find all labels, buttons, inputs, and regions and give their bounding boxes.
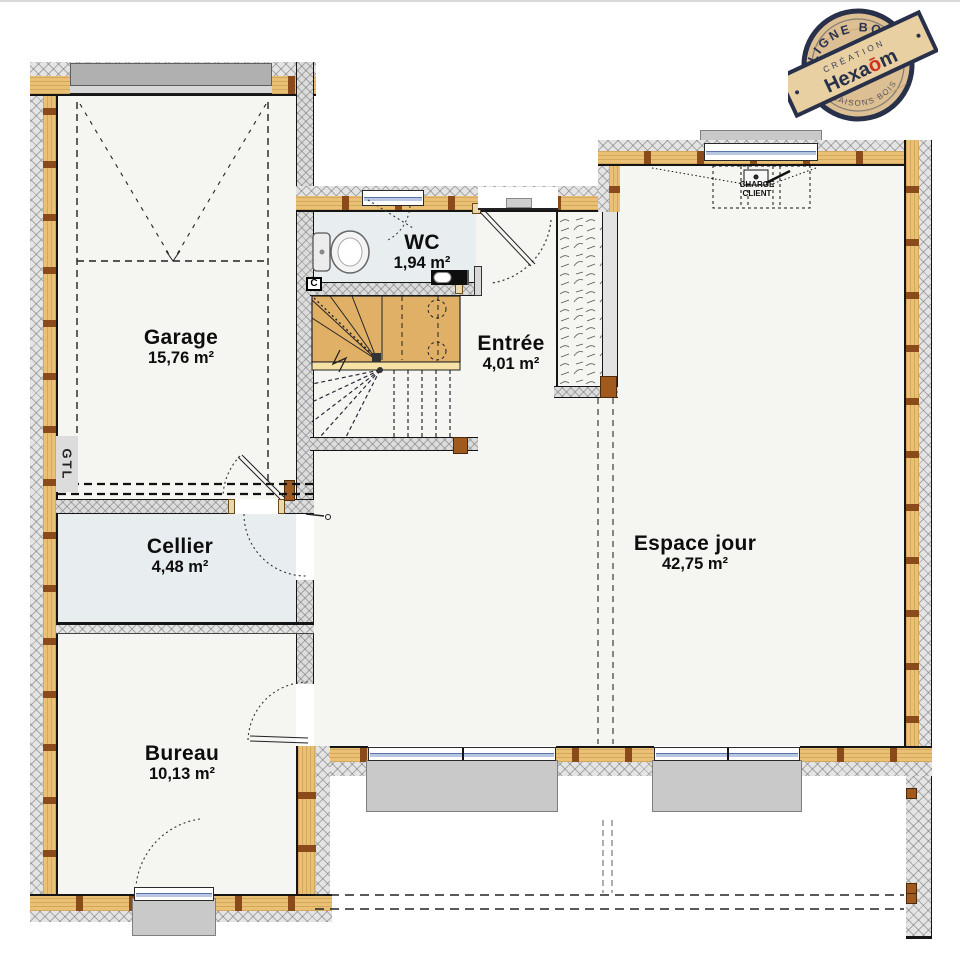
bureau-floor: [58, 634, 296, 894]
bay-window-2: [654, 747, 800, 761]
wood-post: [600, 376, 617, 398]
mullion: [727, 748, 729, 760]
stamp-top-text: LIGNE BOIS: [799, 11, 904, 68]
bureau-window-sill: [132, 898, 216, 936]
bay-window-1-sill: [366, 760, 558, 812]
wood-post: [453, 437, 468, 454]
terrace-outline: [315, 820, 904, 909]
stamp-band: CRÉATION Hexaōm: [788, 12, 936, 115]
svg-text:LIGNE BOIS: LIGNE BOIS: [799, 11, 904, 68]
door-jamb: [455, 283, 463, 294]
wc-window: [362, 190, 424, 206]
wall-garage-cellier-b: [285, 499, 314, 514]
wall-east-inner-line: [904, 140, 906, 756]
wall-strip-east: [602, 212, 618, 386]
wall-north-entrance: [296, 186, 618, 212]
espace-jour-north-window: [704, 143, 818, 161]
gtl-duct-label: GTL: [56, 436, 78, 492]
wall-east: [906, 140, 932, 940]
floor-plan: GTL C CHARGE CLIENT Garage 15,76 m² WC 1…: [0, 0, 960, 958]
espace-jour-floor: [618, 166, 906, 746]
stamp-brand: Hexaōm: [821, 45, 901, 98]
stamp-bottom-text: MAISONS BOIS: [828, 77, 902, 115]
cellier-floor: [58, 514, 296, 622]
charge-client-note: CHARGE CLIENT: [722, 180, 792, 198]
wall-wc-stairs: [310, 282, 478, 296]
wood-grain: [806, 20, 910, 110]
wall-west: [30, 62, 58, 922]
stamp-creation: CRÉATION: [821, 37, 886, 75]
garage-door: [70, 63, 272, 96]
garage-floor: [58, 96, 296, 499]
heater-symbol: C: [306, 277, 322, 291]
hexaom-stamp: LIGNE BOIS MAISONS BOIS CRÉATION Hexaōm: [788, 2, 938, 132]
stamp-ring: [793, 2, 923, 130]
strip-west-line: [556, 212, 558, 388]
wall-garage-cellier-a: [56, 499, 228, 514]
mullion: [462, 748, 464, 760]
bay-window-1: [368, 747, 556, 761]
page-top-rule: [0, 0, 960, 2]
wall-cellier-bureau: [56, 622, 314, 634]
door-jamb: [278, 499, 285, 514]
wood-post: [284, 480, 295, 501]
front-door-opening: [478, 187, 558, 210]
door-jamb: [228, 499, 235, 514]
door-jamb: [451, 356, 459, 364]
svg-text:MAISONS BOIS: MAISONS BOIS: [828, 77, 902, 115]
bureau-window: [134, 887, 214, 901]
wall-wc-partition: [474, 266, 482, 296]
wc-floor: [314, 212, 476, 282]
bay-window-2-sill: [652, 760, 802, 812]
